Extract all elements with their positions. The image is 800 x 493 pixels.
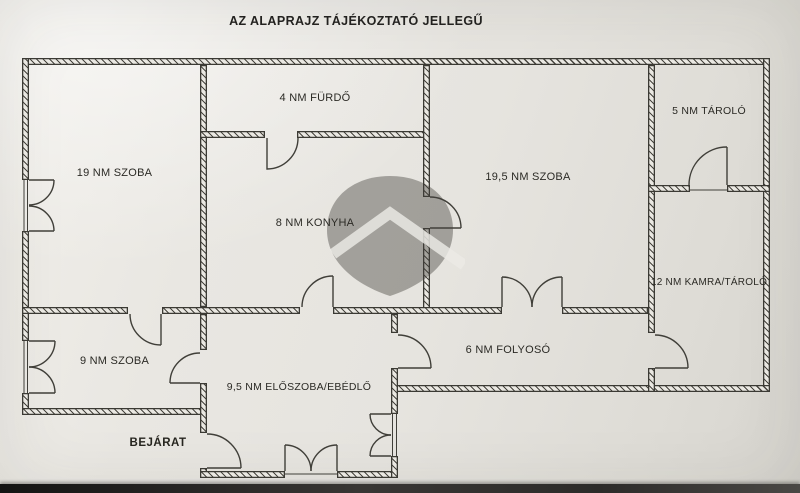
room-label-eloszoba: 9,5 NM ELŐSZOBA/EBÉDLŐ (207, 314, 391, 471)
floorplan-photo: AZ ALAPRAJZ TÁJÉKOZTATÓ JELLEGŰ (0, 0, 800, 493)
room-label-kamra: 12 NM KAMRA/TÁROLÓ (655, 192, 763, 385)
room-label-szoba19: 19 NM SZOBA (29, 65, 200, 307)
room-label-konyha: 8 NM KONYHA (207, 138, 423, 307)
room-label-tarolo: 5 NM TÁROLÓ (655, 65, 763, 185)
room-label-szoba9: 9 NM SZOBA (29, 314, 200, 408)
room-label-szoba195: 19,5 NM SZOBA (430, 65, 648, 307)
room-label-furdo: 4 NM FÜRDŐ (207, 65, 423, 131)
photo-bottom-edge (0, 484, 800, 493)
entrance-label: BEJÁRAT (108, 437, 208, 449)
room-label-folyoso: 6 NM FOLYOSÓ (398, 314, 648, 385)
